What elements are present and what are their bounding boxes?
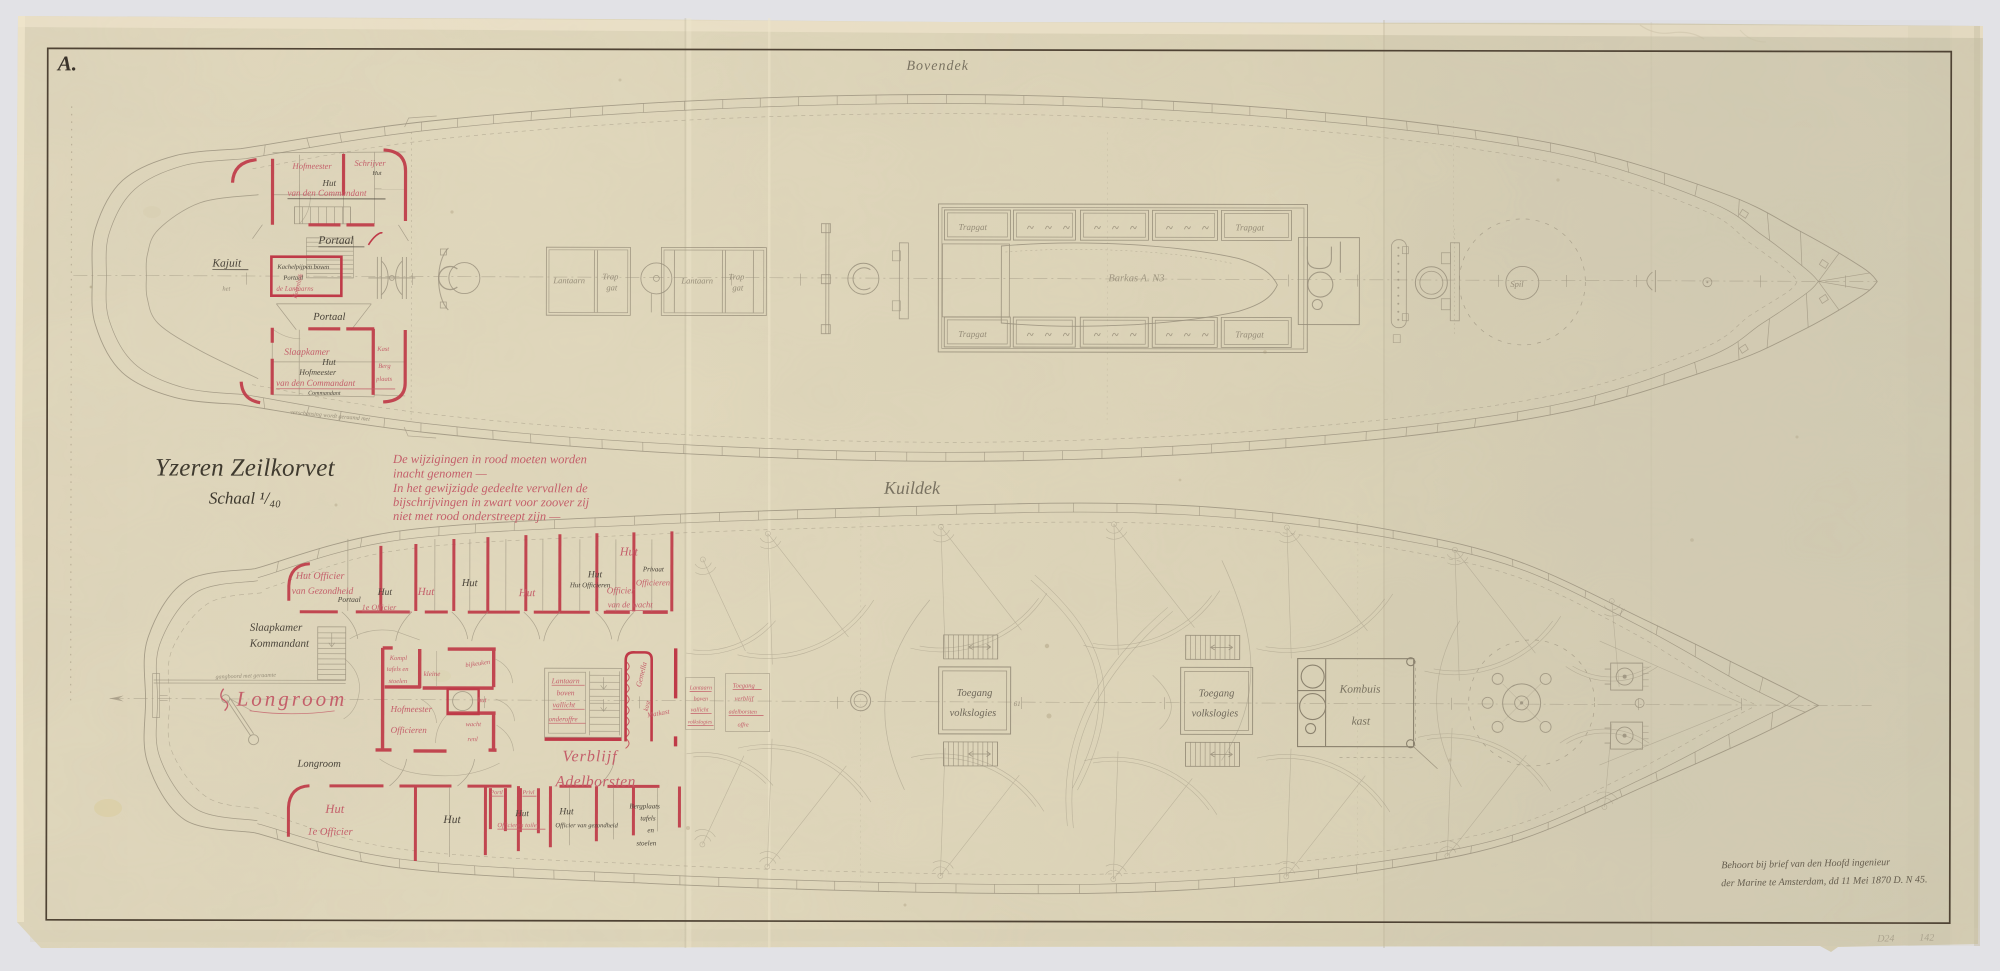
svg-text:van den Commandant: van den Commandant (276, 378, 356, 388)
svg-text:gat: gat (606, 282, 618, 292)
svg-text:Trapgat: Trapgat (958, 329, 987, 339)
svg-text:Privaat: Privaat (642, 565, 665, 573)
svg-text:Toegang: Toegang (733, 683, 756, 690)
svg-text:Yzeren Zeilkorvet: Yzeren Zeilkorvet (155, 455, 336, 482)
svg-text:Adelborsten: Adelborsten (554, 773, 635, 790)
svg-text:Lantaarn: Lantaarn (552, 275, 585, 285)
svg-text:hut: hut (478, 696, 488, 704)
svg-text:volkslogies: volkslogies (950, 708, 997, 719)
svg-text:Portaal: Portaal (337, 595, 361, 604)
svg-text:kleine: kleine (424, 670, 441, 678)
svg-text:boven: boven (694, 696, 708, 702)
svg-text:volkslogies: volkslogies (1192, 708, 1239, 719)
svg-text:Bergplaats: Bergplaats (629, 802, 660, 810)
svg-text:Officier van gezondheid: Officier van gezondheid (555, 822, 618, 829)
svg-text:en: en (647, 826, 654, 834)
svg-text:verblijf: verblijf (735, 696, 755, 703)
svg-text:Hut: Hut (558, 807, 574, 817)
svg-text:Trapgat: Trapgat (1235, 222, 1264, 232)
svg-text:van de wacht: van de wacht (608, 599, 654, 609)
svg-text:Officieren: Officieren (636, 577, 670, 587)
svg-text:adelborsten: adelborsten (729, 710, 757, 716)
svg-text:Hofmeester: Hofmeester (292, 161, 333, 171)
svg-text:Barkas A. N3: Barkas A. N3 (1108, 273, 1164, 284)
svg-text:Hut: Hut (321, 357, 336, 367)
svg-text:Hut: Hut (619, 544, 639, 558)
svg-text:kast: kast (1352, 716, 1371, 728)
svg-text:Hut: Hut (442, 814, 461, 826)
svg-text:wacht: wacht (466, 721, 482, 728)
svg-text:Slaapkamer: Slaapkamer (250, 622, 303, 634)
svg-text:Trapgat: Trapgat (1235, 329, 1264, 339)
svg-text:A.: A. (56, 51, 77, 75)
svg-text:Spil: Spil (1510, 279, 1524, 289)
svg-text:Portaal: Portaal (312, 312, 345, 323)
svg-text:gat: gat (732, 283, 744, 293)
svg-text:het: het (222, 286, 230, 293)
svg-text:1e Officier: 1e Officier (362, 603, 397, 612)
svg-text:niet met rood onderstreept zij: niet met rood onderstreept zijn — (393, 509, 561, 523)
svg-text:Kajuit: Kajuit (211, 258, 242, 270)
svg-text:Kuildek: Kuildek (883, 478, 941, 498)
svg-text:Hut Officier: Hut Officier (295, 571, 345, 582)
svg-text:In het gewijzigde gedeelte ver: In het gewijzigde gedeelte vervallen de (392, 481, 588, 495)
svg-text:Longroom: Longroom (297, 759, 342, 770)
svg-text:van den Commandant: van den Commandant (288, 188, 368, 198)
svg-text:boven: boven (557, 688, 575, 697)
svg-text:Privl: Privl (521, 790, 534, 796)
svg-text:Trap: Trap (728, 272, 744, 282)
svg-text:tafels: tafels (640, 814, 655, 822)
svg-text:Officieren: Officieren (391, 725, 428, 735)
svg-text:De wijzigingen in rood moeten: De wijzigingen in rood moeten worden (392, 452, 587, 466)
svg-text:Trapgat: Trapgat (958, 222, 987, 232)
svg-text:Toegang: Toegang (1199, 688, 1235, 699)
svg-text:142: 142 (1919, 933, 1934, 944)
svg-text:Toegang: Toegang (957, 688, 993, 699)
svg-text:bijschrijvingen in zwart voor: bijschrijvingen in zwart voor zoover zij (393, 495, 590, 509)
svg-text:Kombuis: Kombuis (1339, 684, 1381, 696)
svg-text:Schrijver: Schrijver (355, 158, 387, 168)
svg-text:Verblijf: Verblijf (563, 748, 620, 765)
svg-text:Hut: Hut (587, 570, 603, 580)
svg-text:Hut: Hut (324, 802, 344, 816)
svg-text:onderoffre: onderoffre (549, 715, 578, 723)
svg-text:Lantaarn: Lantaarn (680, 275, 713, 285)
svg-text:Portaal: Portaal (317, 235, 353, 247)
svg-text:Hut: Hut (518, 587, 536, 599)
svg-text:tafels en: tafels en (387, 666, 409, 673)
svg-text:Hut: Hut (461, 578, 479, 589)
svg-text:Hut: Hut (377, 588, 393, 598)
svg-text:Hofmeester: Hofmeester (390, 704, 433, 714)
svg-text:Berg: Berg (378, 363, 391, 370)
svg-text:Longroom: Longroom (236, 687, 348, 711)
svg-text:vallicht: vallicht (691, 707, 709, 713)
svg-text:Hut Officieren: Hut Officieren (569, 581, 611, 589)
svg-text:stoelen: stoelen (636, 839, 656, 847)
svg-text:volkslogies: volkslogies (688, 719, 712, 725)
svg-text:Hofmeester: Hofmeester (298, 368, 337, 377)
svg-text:renl: renl (468, 736, 478, 743)
svg-text:Trap: Trap (602, 271, 618, 281)
svg-text:1e Officier: 1e Officier (307, 827, 353, 838)
svg-text:Schaal ¹/₄₀: Schaal ¹/₄₀ (209, 489, 281, 508)
svg-text:Hut: Hut (372, 171, 382, 177)
svg-text:Lantaarn: Lantaarn (689, 685, 712, 691)
svg-text:61: 61 (1014, 700, 1021, 708)
svg-text:Hut: Hut (514, 808, 529, 818)
svg-text:inacht genomen —: inacht genomen — (393, 466, 488, 480)
svg-text:plaats: plaats (375, 376, 392, 383)
svg-text:Officier: Officier (607, 585, 636, 595)
svg-text:vallicht: vallicht (553, 700, 576, 709)
svg-text:Bovendek: Bovendek (907, 59, 969, 74)
svg-text:Hut: Hut (322, 178, 337, 188)
svg-text:Kast: Kast (376, 346, 389, 353)
svg-text:Hut: Hut (417, 586, 435, 598)
svg-text:D24: D24 (1876, 934, 1894, 945)
svg-text:Commandant: Commandant (308, 391, 341, 397)
svg-text:Lantaarn: Lantaarn (551, 676, 580, 685)
svg-text:Officieren toilet: Officieren toilet (497, 822, 538, 829)
svg-text:Kompl: Kompl (389, 655, 408, 662)
svg-text:Kommandant: Kommandant (249, 638, 310, 650)
svg-text:stoelen: stoelen (389, 678, 407, 685)
svg-text:offre: offre (738, 722, 749, 729)
svg-text:Portl: Portl (489, 790, 503, 796)
svg-text:Kachelpijpen boven: Kachelpijpen boven (276, 264, 329, 271)
